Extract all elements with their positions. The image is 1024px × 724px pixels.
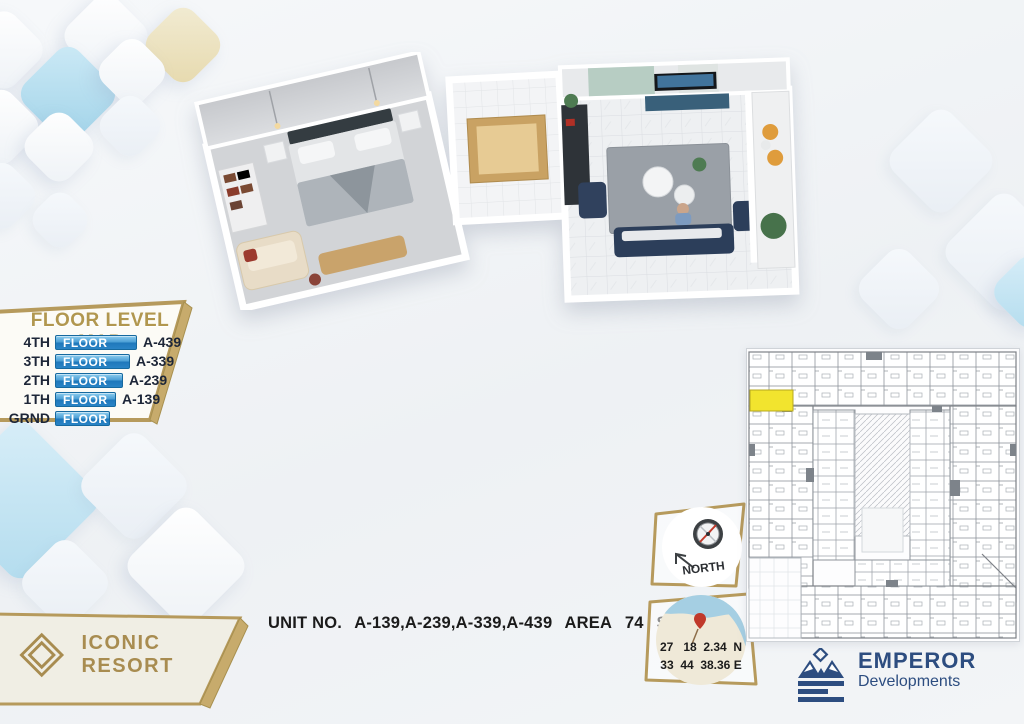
floor-level-label: 3TH bbox=[6, 353, 55, 369]
highlighted-unit[interactable] bbox=[750, 390, 793, 411]
bedroom-section bbox=[196, 52, 465, 308]
unit-info-line: UNIT NO. A-139,A-239,A-339,A-439 AREA 74… bbox=[268, 614, 628, 633]
floor-row: 4TH FLOOR A-439 bbox=[6, 334, 196, 351]
floor-row: 1TH FLOOR A-139 bbox=[6, 391, 196, 408]
floor-unit-label: A-139 bbox=[116, 391, 160, 407]
floor-unit-label: A-439 bbox=[137, 334, 181, 350]
crown-logo-icon bbox=[794, 648, 848, 702]
bathtub-inner bbox=[476, 123, 538, 174]
balcony bbox=[745, 89, 795, 268]
latitude-text: 27 18 2.34 N bbox=[660, 640, 742, 654]
developer-name: EMPEROR bbox=[858, 650, 976, 672]
floor-bar: FLOOR bbox=[55, 354, 130, 369]
unit-no-label: UNIT NO. bbox=[268, 614, 342, 632]
compass-icon bbox=[693, 519, 723, 549]
apartment-3d-render bbox=[184, 52, 800, 310]
plan-bottom-wing bbox=[801, 586, 1016, 638]
nightstand bbox=[398, 110, 422, 132]
floor-level-label: 1TH bbox=[6, 391, 55, 407]
plan-plaza bbox=[749, 558, 801, 638]
floor-row: 3TH FLOOR A-339 bbox=[6, 353, 196, 370]
floor-level-label: 2TH bbox=[6, 372, 55, 388]
developer-logo: EMPEROR Developments bbox=[794, 648, 976, 702]
living-section bbox=[560, 59, 796, 299]
bathroom-section bbox=[449, 74, 566, 222]
floor-bar: FLOOR bbox=[55, 411, 110, 426]
plan-inner-left bbox=[813, 410, 855, 560]
floor-row: 2TH FLOOR A-239 bbox=[6, 372, 196, 389]
plan-right-wing bbox=[950, 406, 1016, 602]
armchair bbox=[578, 182, 607, 219]
decor-diamond bbox=[852, 242, 945, 335]
coffee-table bbox=[674, 185, 695, 206]
glass-panel bbox=[588, 66, 655, 96]
coffee-table bbox=[642, 166, 673, 197]
floor-bar: FLOOR bbox=[55, 373, 123, 388]
floor-level-label: 4TH bbox=[6, 334, 55, 350]
floor-level-rows: 4TH FLOOR A-439 3TH FLOOR A-339 2TH FLOO… bbox=[6, 334, 196, 429]
brochure-page: { "floor_level_map": { "title": "FLOOR L… bbox=[0, 0, 1024, 724]
resort-logo: ICONIC RESORT bbox=[14, 626, 252, 684]
plan-bottom-inner bbox=[855, 560, 950, 586]
floor-level-label: GRND bbox=[6, 410, 55, 426]
compass-badge: NORTH bbox=[652, 504, 744, 587]
diamond-logo-icon bbox=[14, 626, 69, 684]
nightstand bbox=[264, 141, 288, 163]
floor-level-map-panel: FLOOR LEVEL MAP 4TH FLOOR A-439 3TH FLOO… bbox=[0, 298, 210, 430]
floor-row: GRND FLOOR bbox=[6, 410, 196, 427]
resort-logo-panel: ICONIC RESORT bbox=[0, 604, 252, 710]
plan-inner-right bbox=[910, 410, 950, 560]
decor-diamond bbox=[26, 186, 94, 254]
decor-diamond bbox=[883, 103, 999, 219]
floor-unit-label: A-339 bbox=[130, 353, 174, 369]
pool-deck bbox=[862, 508, 903, 552]
resort-name: ICONIC RESORT bbox=[81, 632, 252, 678]
floor-bar: FLOOR bbox=[55, 392, 116, 407]
developer-subtitle: Developments bbox=[858, 672, 976, 691]
building-floor-plan-map bbox=[746, 348, 1020, 642]
developer-text: EMPEROR Developments bbox=[858, 650, 976, 691]
location-badge: 27 18 2.34 N 33 44 38.36 E bbox=[646, 594, 756, 685]
floor-bar: FLOOR bbox=[55, 335, 137, 350]
longitude-text: 33 44 38.36 E bbox=[660, 658, 741, 672]
unit-numbers: A-139,A-239,A-339,A-439 bbox=[354, 614, 552, 632]
area-label: AREA bbox=[565, 614, 613, 632]
floor-unit-label: A-239 bbox=[123, 372, 167, 388]
